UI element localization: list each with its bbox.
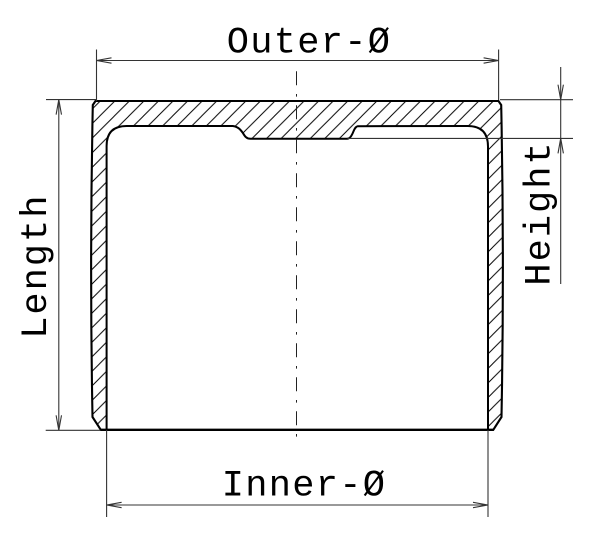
svg-text:Inner-Ø: Inner-Ø [222, 465, 387, 507]
svg-text:Length: Length [16, 194, 58, 339]
svg-text:Outer-Ø: Outer-Ø [227, 22, 392, 64]
svg-text:Height: Height [519, 140, 561, 285]
